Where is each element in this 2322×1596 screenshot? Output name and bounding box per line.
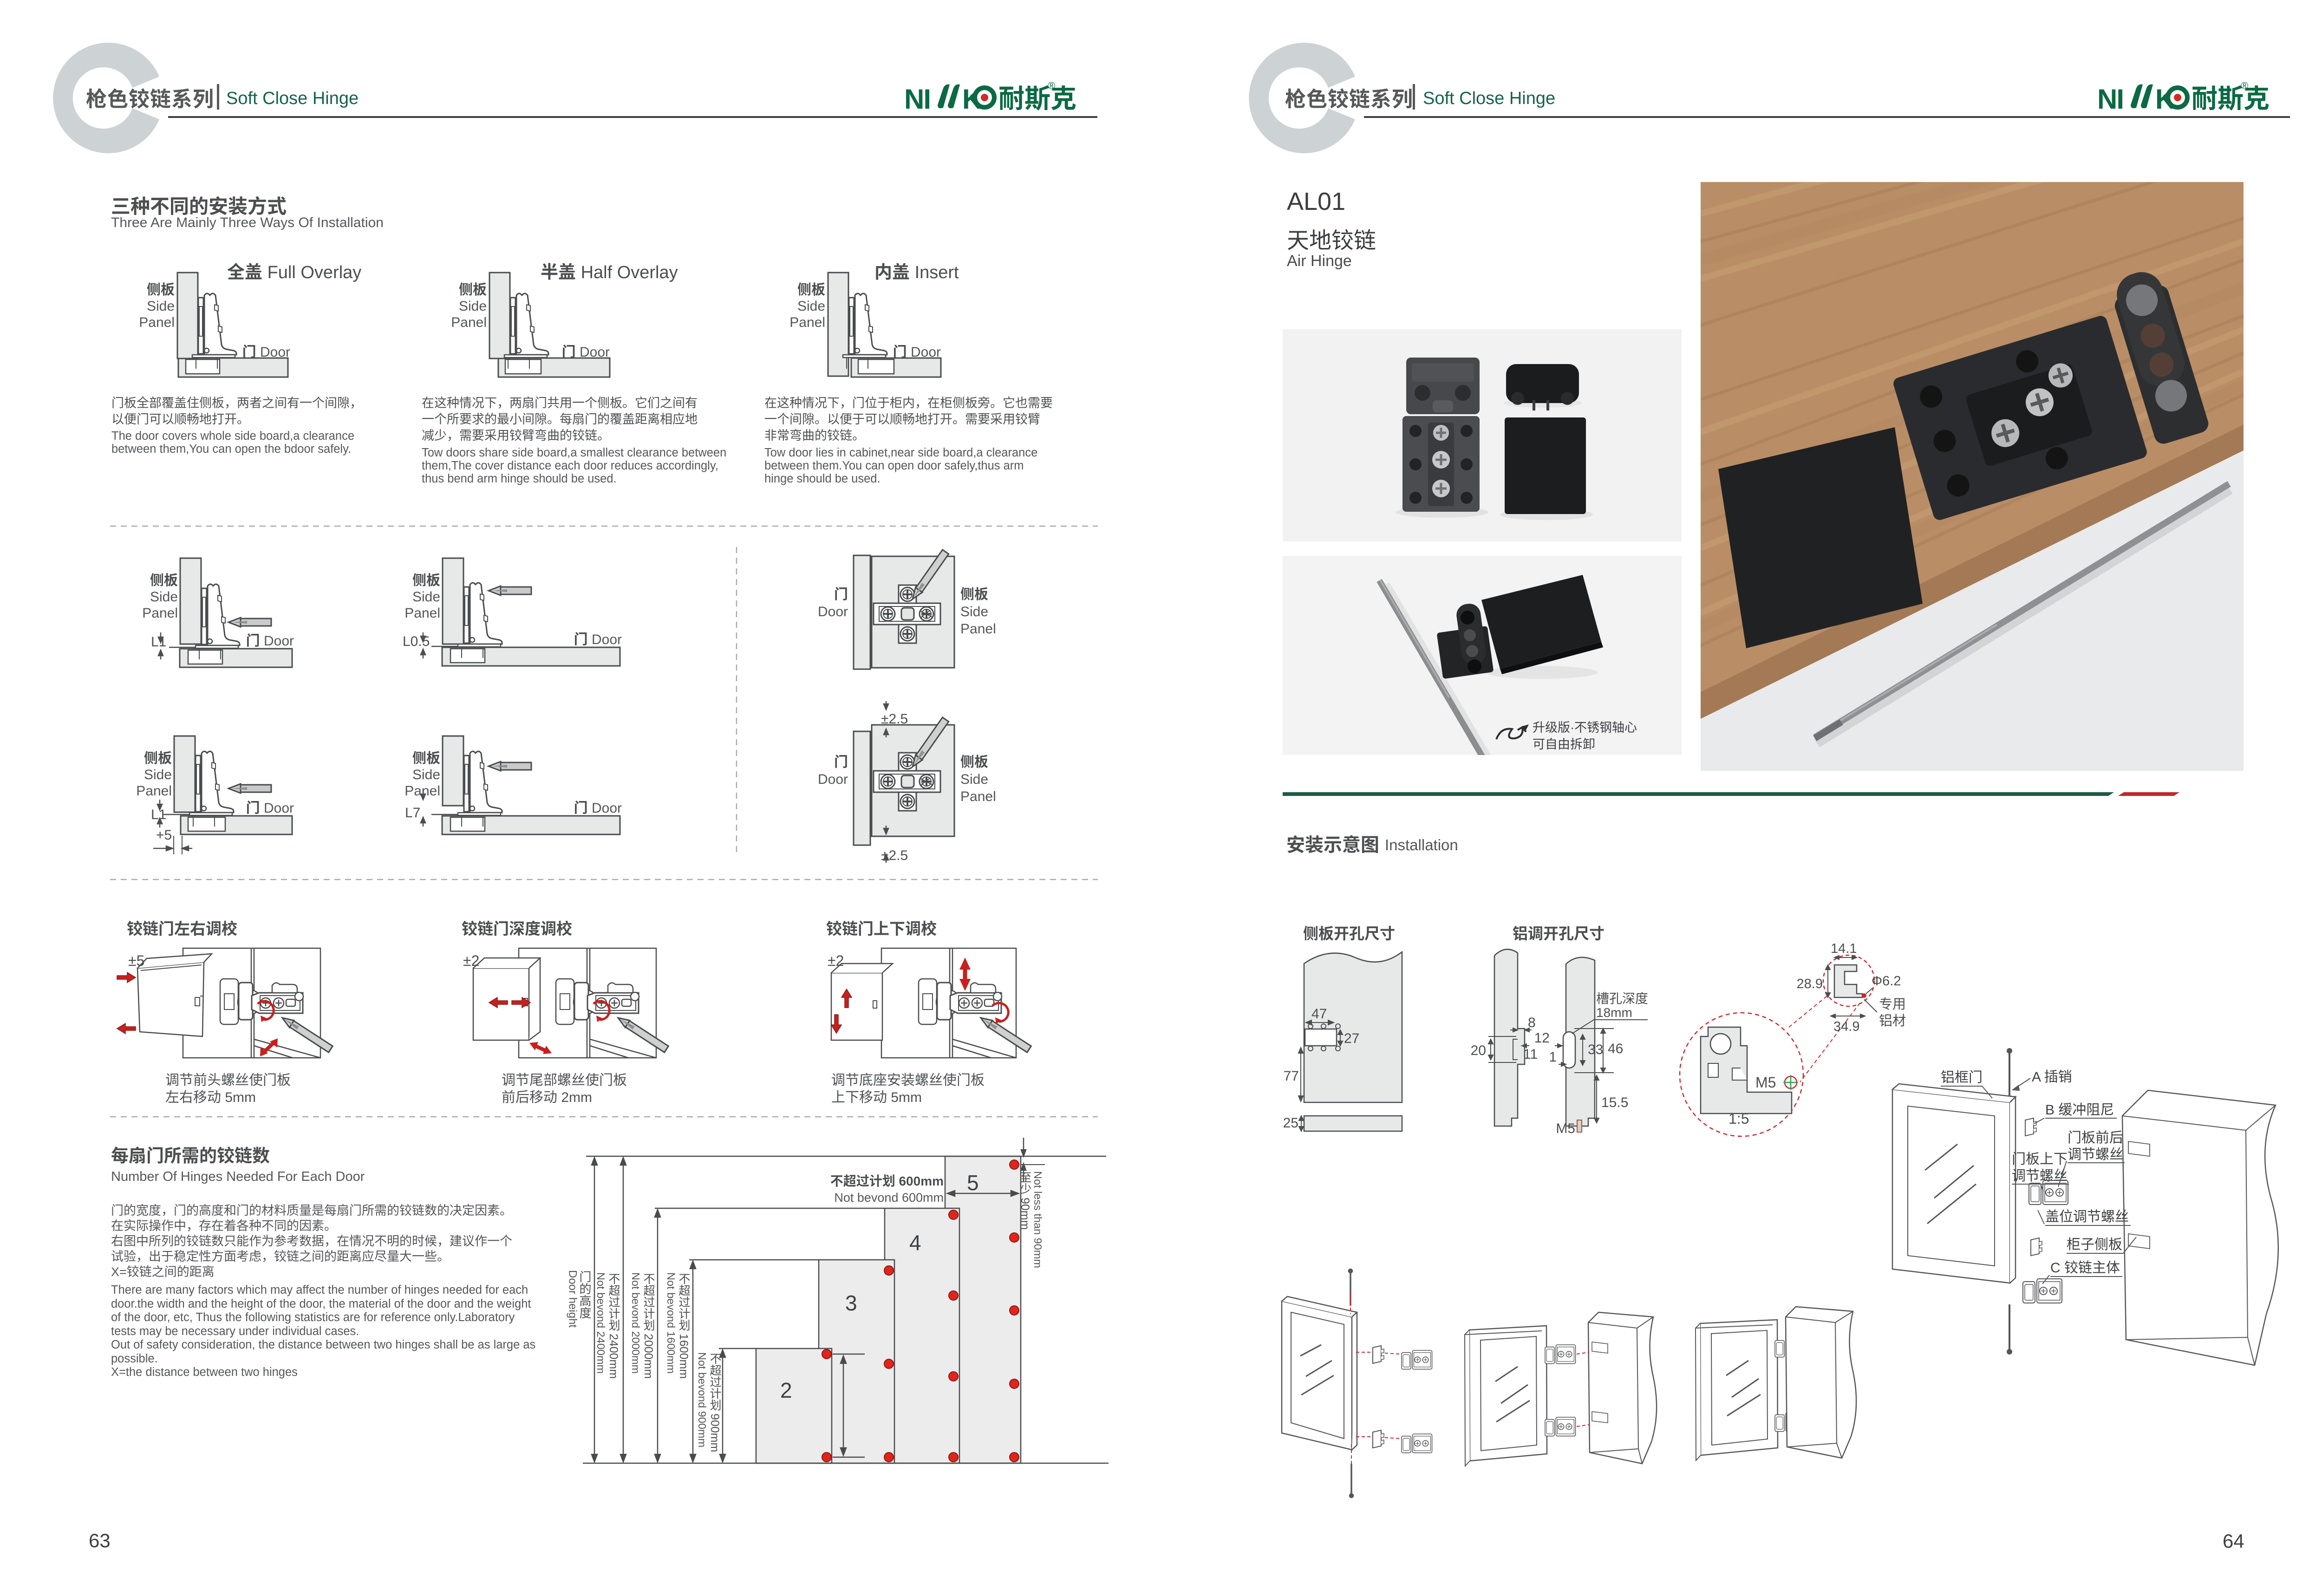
- svg-text:C 铰链主体: C 铰链主体: [2050, 1260, 2120, 1276]
- svg-text:NI: NI: [2097, 84, 2123, 115]
- svg-text:M5: M5: [1755, 1074, 1776, 1091]
- svg-text:Not bevond 1600mm: Not bevond 1600mm: [665, 1272, 677, 1374]
- svg-text:三种不同的安装方式: 三种不同的安装方式: [111, 195, 287, 217]
- svg-text:15.5: 15.5: [1601, 1095, 1628, 1110]
- svg-text:63: 63: [89, 1530, 111, 1551]
- svg-text:1: 1: [1549, 1049, 1557, 1065]
- svg-text:Door: Door: [818, 604, 848, 619]
- svg-text:以便门可以顺畅地打开。: 以便门可以顺畅地打开。: [111, 412, 249, 426]
- svg-text:AL01: AL01: [1287, 188, 1345, 215]
- svg-text:±2.5: ±2.5: [881, 711, 908, 727]
- svg-text:tests may be necessary under i: tests may be necessary under individual …: [111, 1325, 359, 1338]
- svg-text:Not bevond 2000mm: Not bevond 2000mm: [630, 1272, 642, 1374]
- svg-text:天地铰链: 天地铰链: [1287, 228, 1376, 253]
- svg-text:+5: +5: [156, 827, 172, 843]
- svg-text:NI: NI: [904, 84, 930, 115]
- svg-text:28.9: 28.9: [1797, 977, 1823, 991]
- svg-text:Not bevond 2400mm: Not bevond 2400mm: [595, 1272, 607, 1374]
- svg-text:在实际操作中，存在着各种不同的因素。: 在实际操作中，存在着各种不同的因素。: [111, 1219, 337, 1233]
- svg-text:20: 20: [1471, 1043, 1486, 1058]
- svg-text:内盖 Insert: 内盖 Insert: [874, 263, 959, 282]
- svg-text:4: 4: [909, 1231, 921, 1255]
- svg-text:X=铰链之间的距离: X=铰链之间的距离: [111, 1265, 215, 1279]
- svg-text:试验，出于稳定性方面考虑，铰链之间的距离应尽量大一些。: 试验，出于稳定性方面考虑，铰链之间的距离应尽量大一些。: [111, 1250, 450, 1264]
- svg-text:14.1: 14.1: [1831, 941, 1857, 956]
- svg-text:47: 47: [1311, 1006, 1327, 1022]
- svg-text:门 Door: 门 Door: [246, 633, 294, 649]
- svg-text:非常弯曲的铰链。: 非常弯曲的铰链。: [764, 429, 865, 443]
- svg-text:18mm: 18mm: [1596, 1005, 1632, 1020]
- svg-text:3: 3: [845, 1291, 857, 1315]
- svg-text:右图中所列的铰链数只能作为参考数据，在情况不明的时候，建议作: 右图中所列的铰链数只能作为参考数据，在情况不明的时候，建议作一个: [111, 1234, 512, 1248]
- svg-text:®: ®: [1048, 80, 1055, 91]
- svg-text:Side: Side: [960, 772, 988, 787]
- svg-text:铝框门: 铝框门: [1941, 1070, 1983, 1085]
- svg-text:Three Are Mainly Three Ways Of: Three Are Mainly Three Ways Of Installat…: [111, 215, 384, 230]
- svg-text:A 插销: A 插销: [2032, 1069, 2072, 1085]
- svg-text:在这种情况下，门位于柜内，在柜侧板旁。它也需要: 在这种情况下，门位于柜内，在柜侧板旁。它也需要: [764, 396, 1053, 410]
- svg-text:门 Door: 门 Door: [574, 632, 622, 647]
- svg-text:Installation: Installation: [1385, 836, 1458, 853]
- svg-text:铰链门深度调校: 铰链门深度调校: [462, 920, 572, 938]
- svg-text:X=the distance between two hin: X=the distance between two hinges: [111, 1366, 298, 1379]
- svg-text:侧板: 侧板: [960, 587, 988, 602]
- svg-text:1:5: 1:5: [1728, 1110, 1749, 1127]
- svg-text:不超过计划 600mm: 不超过计划 600mm: [830, 1174, 944, 1188]
- svg-text:上下移动 5mm: 上下移动 5mm: [831, 1090, 922, 1105]
- svg-text:每扇门所需的铰链数: 每扇门所需的铰链数: [111, 1147, 270, 1166]
- svg-text:侧板: 侧板: [960, 755, 988, 770]
- svg-text:Side: Side: [797, 299, 825, 314]
- svg-text:46: 46: [1608, 1041, 1623, 1056]
- svg-text:门板上下: 门板上下: [2012, 1152, 2068, 1167]
- svg-text:门: 门: [834, 755, 848, 770]
- svg-text:侧板: 侧板: [144, 751, 172, 766]
- svg-text:±2: ±2: [463, 952, 479, 969]
- svg-text:±5: ±5: [128, 952, 144, 969]
- svg-text:门 Door: 门 Door: [562, 345, 610, 360]
- svg-text:Side: Side: [150, 589, 178, 605]
- svg-text:槽孔深度: 槽孔深度: [1596, 991, 1648, 1006]
- svg-text:Side: Side: [412, 767, 440, 782]
- svg-text:不超过计划 2000mm: 不超过计划 2000mm: [642, 1272, 655, 1379]
- svg-text:铝材: 铝材: [1879, 1013, 1906, 1029]
- svg-text:一个间隙。以便于可以顺畅地打开。需要采用铰臂: 一个间隙。以便于可以顺畅地打开。需要采用铰臂: [764, 412, 1040, 426]
- svg-text:调节底座安装螺丝使门板: 调节底座安装螺丝使门板: [831, 1073, 985, 1088]
- svg-text:door.the width and the height: door.the width and the height of the doo…: [111, 1297, 531, 1310]
- svg-text:铰链门左右调校: 铰链门左右调校: [127, 920, 237, 938]
- svg-text:侧板: 侧板: [147, 282, 175, 298]
- svg-text:There are many factors which m: There are many factors which may affect …: [111, 1283, 528, 1296]
- svg-text:侧板开孔尺寸: 侧板开孔尺寸: [1303, 925, 1395, 942]
- svg-text:thus bend arm hinge should be: thus bend arm hinge should be used.: [422, 472, 617, 485]
- svg-text:77: 77: [1284, 1068, 1299, 1084]
- svg-text:Side: Side: [147, 299, 175, 314]
- svg-text:侧板: 侧板: [150, 573, 178, 588]
- svg-text:Air Hinge: Air Hinge: [1287, 252, 1352, 270]
- svg-text:64: 64: [2223, 1530, 2244, 1552]
- svg-text:侧板: 侧板: [797, 282, 825, 298]
- svg-text:可自由拆卸: 可自由拆卸: [1533, 737, 1595, 751]
- svg-text:Φ6.2: Φ6.2: [1872, 974, 1901, 989]
- svg-text:12: 12: [1534, 1030, 1550, 1046]
- svg-text:调节前头螺丝使门板: 调节前头螺丝使门板: [165, 1073, 291, 1088]
- svg-text:®: ®: [2241, 80, 2248, 91]
- svg-text:耐斯克: 耐斯克: [998, 84, 1076, 113]
- svg-text:11: 11: [1523, 1047, 1538, 1062]
- svg-text:不超过计划 900mm: 不超过计划 900mm: [708, 1352, 722, 1452]
- svg-text:调节螺丝: 调节螺丝: [2068, 1147, 2123, 1162]
- svg-text:Panel: Panel: [404, 783, 440, 799]
- svg-text:至少 90mm: 至少 90mm: [1018, 1171, 1032, 1230]
- svg-text:盖位调节螺丝: 盖位调节螺丝: [2045, 1209, 2129, 1225]
- svg-text:Side: Side: [144, 767, 172, 782]
- svg-text:门 Door: 门 Door: [893, 345, 941, 360]
- svg-text:升级版·不锈钢轴心: 升级版·不锈钢轴心: [1533, 721, 1637, 735]
- svg-text:27: 27: [1344, 1031, 1359, 1046]
- svg-text:them,The cover distance each d: them,The cover distance each door reduce…: [422, 459, 718, 472]
- svg-text:Panel: Panel: [789, 315, 825, 330]
- svg-text:L7: L7: [405, 805, 420, 821]
- svg-text:Number Of Hinges Needed For Ea: Number Of Hinges Needed For Each Door: [111, 1169, 365, 1184]
- svg-text:不超过计划 1600mm: 不超过计划 1600mm: [677, 1272, 691, 1379]
- svg-text:2: 2: [780, 1378, 792, 1402]
- svg-text:侧板: 侧板: [412, 573, 440, 588]
- svg-text:34.9: 34.9: [1833, 1019, 1859, 1034]
- svg-text:侧板: 侧板: [412, 751, 440, 766]
- svg-text:柜子侧板: 柜子侧板: [2067, 1237, 2122, 1252]
- svg-text:M5: M5: [1556, 1121, 1575, 1136]
- svg-text:Panel: Panel: [451, 315, 487, 330]
- svg-text:铰链门上下调校: 铰链门上下调校: [826, 920, 937, 938]
- svg-text:不超过计划 2400mm: 不超过计划 2400mm: [607, 1272, 620, 1379]
- svg-text:B 缓冲阻尼: B 缓冲阻尼: [2045, 1102, 2114, 1118]
- svg-text:Panel: Panel: [960, 789, 996, 804]
- svg-text:减少，需要采用铰臂弯曲的铰链。: 减少，需要采用铰臂弯曲的铰链。: [422, 429, 610, 443]
- svg-text:Panel: Panel: [136, 783, 172, 799]
- svg-text:±2: ±2: [828, 952, 844, 969]
- svg-text:Side: Side: [960, 604, 988, 619]
- svg-text:Soft Close Hinge: Soft Close Hinge: [1423, 89, 1555, 108]
- svg-text:Panel: Panel: [142, 606, 178, 621]
- svg-text:25: 25: [1283, 1115, 1298, 1131]
- svg-text:门板前后: 门板前后: [2068, 1130, 2123, 1146]
- svg-text:前后移动 2mm: 前后移动 2mm: [502, 1090, 592, 1105]
- svg-text:Tow door lies in cabinet,near: Tow door lies in cabinet,near side board…: [764, 446, 1037, 459]
- svg-text:of the door, etc, Thus the fol: of the door, etc, Thus the following sta…: [111, 1311, 515, 1324]
- svg-text:安装示意图: 安装示意图: [1286, 835, 1379, 855]
- svg-text:门: 门: [834, 587, 848, 602]
- svg-text:左右移动 5mm: 左右移动 5mm: [165, 1090, 256, 1105]
- svg-text:全盖 Full Overlay: 全盖 Full Overlay: [227, 263, 361, 282]
- svg-text:Door height: Door height: [567, 1270, 579, 1328]
- svg-text:Soft Close Hinge: Soft Close Hinge: [226, 89, 359, 108]
- svg-text:在这种情况下，两扇门共用一个侧板。它们之间有: 在这种情况下，两扇门共用一个侧板。它们之间有: [422, 396, 698, 410]
- svg-text:Door: Door: [818, 772, 848, 787]
- svg-text:33: 33: [1588, 1042, 1603, 1057]
- svg-text:Not bevond 600mm: Not bevond 600mm: [834, 1191, 944, 1205]
- svg-text:The door covers whole side boa: The door covers whole side board,a clear…: [111, 430, 354, 443]
- svg-text:专用: 专用: [1879, 997, 1906, 1012]
- svg-text:between them.You can open door: between them.You can open door safely,th…: [764, 459, 1024, 472]
- svg-text:Tow doors share side board,a s: Tow doors share side board,a smallest cl…: [422, 446, 726, 459]
- svg-text:门 Door: 门 Door: [246, 801, 294, 816]
- svg-text:调节尾部螺丝使门板: 调节尾部螺丝使门板: [502, 1073, 627, 1088]
- svg-text:Out of safety consideration, t: Out of safety consideration, the distanc…: [111, 1338, 535, 1351]
- svg-text:between them,You can open the: between them,You can open the bdoor safe…: [111, 443, 351, 456]
- svg-text:Side: Side: [412, 589, 440, 605]
- svg-text:Panel: Panel: [960, 621, 996, 637]
- svg-text:hinge should be used.: hinge should be used.: [764, 472, 881, 485]
- svg-text:枪色铰链系列: 枪色铰链系列: [1285, 87, 1413, 111]
- svg-text:Panel: Panel: [404, 606, 440, 621]
- svg-text:门的高度: 门的高度: [578, 1270, 592, 1319]
- svg-text:半盖 Half Overlay: 半盖 Half Overlay: [541, 263, 678, 282]
- svg-text:Not less than 90mm: Not less than 90mm: [1032, 1171, 1044, 1268]
- svg-text:一个所要求的最小间隙。每扇门的覆盖距离相应地: 一个所要求的最小间隙。每扇门的覆盖距离相应地: [422, 412, 698, 426]
- svg-text:门 Door: 门 Door: [242, 345, 290, 360]
- svg-text:Panel: Panel: [139, 315, 175, 330]
- svg-text:调节螺丝: 调节螺丝: [2012, 1168, 2068, 1184]
- svg-text:门板全部覆盖住侧板，两者之间有一个间隙，: 门板全部覆盖住侧板，两者之间有一个间隙，: [111, 396, 362, 410]
- svg-text:Not bevond 900mm: Not bevond 900mm: [696, 1352, 708, 1447]
- svg-text:枪色铰链系列: 枪色铰链系列: [86, 87, 214, 111]
- svg-text:Side: Side: [459, 299, 487, 314]
- svg-text:侧板: 侧板: [459, 282, 487, 298]
- svg-text:门 Door: 门 Door: [574, 801, 622, 816]
- svg-text:耐斯克: 耐斯克: [2192, 84, 2270, 113]
- svg-text:possible.: possible.: [111, 1352, 158, 1365]
- svg-text:5: 5: [967, 1171, 979, 1195]
- svg-text:门的宽度，门的高度和门的材料质量是每扇门所需的铰链数的决定因: 门的宽度，门的高度和门的材料质量是每扇门所需的铰链数的决定因素。: [111, 1204, 512, 1218]
- svg-text:铝调开孔尺寸: 铝调开孔尺寸: [1513, 925, 1605, 942]
